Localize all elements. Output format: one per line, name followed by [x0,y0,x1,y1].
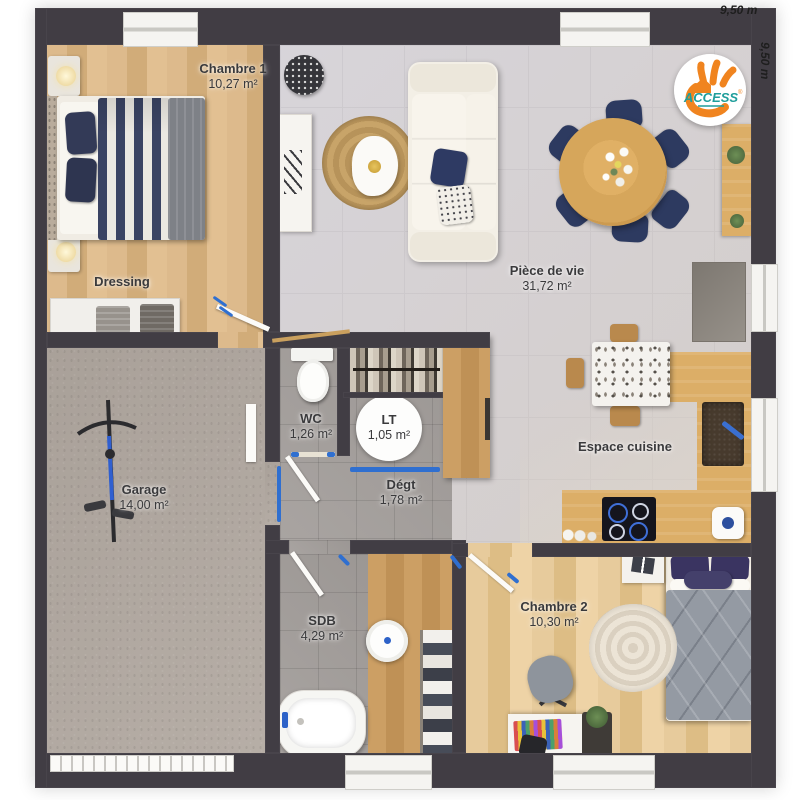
room-name: SDB [301,614,343,629]
bathtub-faucet [282,712,288,728]
duvet-gray [666,590,754,720]
room-name: Chambre 2 [520,600,587,615]
pillow-navy [429,148,468,189]
wall-hall-sdb-left [265,540,289,554]
window-chambre1 [123,12,198,47]
label-degt: Dégt 1,78 m² [380,478,422,507]
storage-basket [140,304,174,334]
room-name: Chambre 1 [199,62,266,77]
hob-burner [609,524,625,540]
pillow-polkadot [436,184,474,226]
table-flowers [598,142,638,192]
hob-burner [632,503,649,520]
bicycle [70,392,140,552]
tall-unit-concrete [692,262,746,342]
kitchen-counter-top-arm [668,352,698,402]
threshold-chambre2-door [468,543,532,557]
room-area: 4,29 m² [301,629,343,643]
room-name: Espace cuisine [578,440,672,455]
wall-lt-divider [343,392,443,398]
room-name: LT [368,413,410,428]
planter-plant [586,706,608,728]
countertop-dishes [563,528,597,542]
garage-door-leaf [246,404,256,462]
room-name: Garage [119,483,168,498]
room-name: Dressing [94,275,150,290]
pillow-navy [65,111,98,155]
wc-door-handle [327,452,335,457]
kitchen-island-terrazzo [592,342,670,406]
wc-door-handle [291,452,299,457]
wall-kitchen-chambre2 [532,543,751,557]
blanket-gray [168,98,205,240]
threshold-sdb-door [289,540,350,554]
room-name: WC [290,412,332,427]
garage-sectional-door [50,755,234,772]
access-logo: ACCESS ® [674,54,746,126]
closet-rail-bar [353,368,440,371]
label-espace-cuisine: Espace cuisine [578,440,672,455]
label-lt: LT 1,05 m² [368,413,410,442]
room-area: 31,72 m² [510,279,584,293]
label-piece-de-vie: Pièce de vie 31,72 m² [510,264,584,293]
logo-tagline-bar [698,105,724,107]
label-dressing: Dressing [94,275,150,290]
sofa-armrest [410,232,496,260]
lamp-glow [56,66,76,86]
sideboard-decor [284,150,302,194]
wall-kitchen-chambre2-stub [452,543,468,557]
logo-brand-text: ACCESS [683,90,739,105]
hob-burner [629,522,648,541]
label-chambre1: Chambre 1 10,27 m² [199,62,266,91]
sofa-armrest [410,64,496,92]
wall-exterior-left [35,8,47,788]
dimension-right: 9,50 m [758,42,772,79]
room-name: Pièce de vie [510,264,584,279]
round-rug [589,604,677,692]
sink-faucet [384,637,391,644]
toilet-bowl [297,360,329,402]
bar-stool [610,324,638,342]
dimension-top: 9,50 m [720,3,757,17]
pillow-navy [65,157,97,203]
entry-door-right [751,264,778,332]
bathtub-drain [297,718,304,725]
wall-dressing-garage [47,332,218,348]
bar-stool [610,406,640,426]
table-decor-flower [368,160,381,173]
wall-hall-sdb-right [350,540,452,554]
entry-cabinet [443,335,490,478]
label-sdb: SDB 4,29 m² [301,614,343,643]
room-area: 1,78 m² [380,493,422,507]
lamp-glow [56,242,76,262]
room-area: 10,30 m² [520,615,587,629]
potted-plant [730,214,744,228]
threshold-chambre1-door [218,332,263,348]
label-chambre2: Chambre 2 10,30 m² [520,600,587,629]
duvet-striped [98,98,170,240]
lt-door-threshold [350,467,440,472]
wall-wc-closet [337,348,350,456]
bar-stool [566,358,584,388]
closet-clothes-rail [350,348,443,394]
room-name: Dégt [380,478,422,493]
access-logo-graphic: ACCESS ® [674,54,746,126]
garage-door-threshold [277,466,281,522]
floor-plan: Chambre 1 10,27 m² Dressing Pièce de vie… [0,0,800,800]
window-living-top [560,12,650,47]
label-garage: Garage 14,00 m² [119,483,168,512]
window-kitchen-right [751,398,778,492]
hob-burner [608,503,628,523]
potted-plant [727,146,745,164]
wall-sdb-chambre2 [452,540,466,753]
storage-basket [96,306,130,334]
appliance-dial [722,517,734,529]
wall-garage-hall-lower [265,525,280,753]
room-area: 14,00 m² [119,498,168,512]
room-area: 1,05 m² [368,428,410,442]
bed-headboard [47,96,57,240]
wall-hall-top [263,332,490,348]
room-area: 1,26 m² [290,427,332,441]
wall-garage-hall-upper [265,348,280,462]
label-wc: WC 1,26 m² [290,412,332,441]
pillow-navy-roll [684,571,732,589]
room-area: 10,27 m² [199,77,266,91]
cabinet-handle [485,398,490,440]
window-chambre2 [553,755,655,790]
logo-registered-mark: ® [738,89,743,96]
window-sdb [345,755,432,790]
pouf-polkadot [284,55,324,95]
bedside-book [631,556,655,575]
